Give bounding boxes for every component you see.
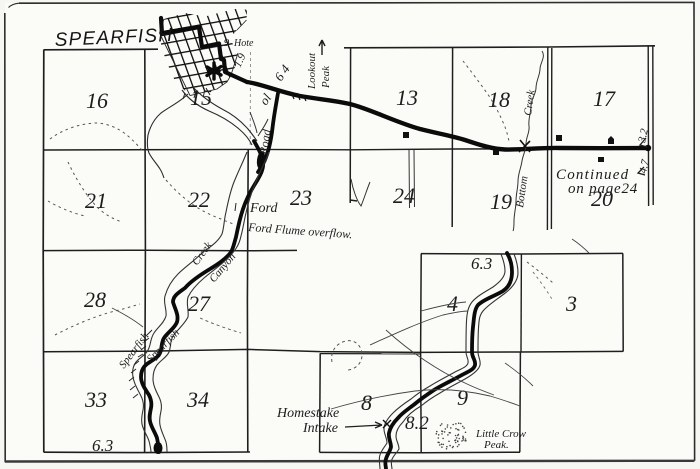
- svg-text:8: 8: [361, 390, 372, 415]
- svg-text:9: 9: [457, 385, 468, 410]
- svg-text:15: 15: [190, 85, 212, 110]
- svg-text:13: 13: [396, 85, 418, 110]
- svg-text:.9: .9: [221, 37, 230, 49]
- svg-text:6.3: 6.3: [471, 254, 492, 273]
- svg-text:33: 33: [84, 387, 107, 412]
- svg-text:16: 16: [86, 88, 108, 113]
- svg-text:28: 28: [84, 287, 106, 312]
- svg-text:on page24: on page24: [568, 181, 638, 197]
- svg-text:21: 21: [85, 188, 107, 213]
- svg-text:24: 24: [393, 183, 415, 208]
- svg-text:18: 18: [488, 87, 510, 112]
- svg-text:Hote: Hote: [233, 38, 254, 49]
- svg-text:27: 27: [188, 291, 211, 316]
- svg-text:8.2: 8.2: [405, 413, 429, 434]
- svg-text:Lookout: Lookout: [306, 52, 318, 90]
- svg-text:Ford: Ford: [249, 201, 278, 216]
- svg-text:23: 23: [290, 185, 312, 210]
- svg-text:Peak: Peak: [320, 65, 332, 89]
- svg-text:17: 17: [593, 86, 616, 111]
- svg-text:Homestake: Homestake: [276, 406, 339, 421]
- svg-text:3: 3: [565, 291, 577, 316]
- svg-text:Intake: Intake: [302, 421, 338, 436]
- svg-text:19: 19: [490, 189, 512, 214]
- svg-text:Peak.: Peak.: [483, 439, 509, 451]
- svg-text:34: 34: [186, 387, 209, 412]
- svg-text:6.3: 6.3: [92, 436, 113, 455]
